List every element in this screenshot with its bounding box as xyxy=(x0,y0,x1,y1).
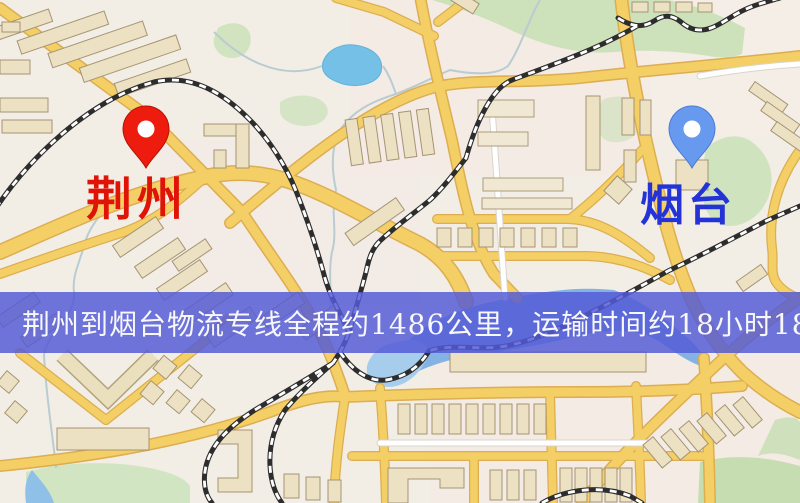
pin-hole xyxy=(138,121,155,138)
lake xyxy=(322,45,381,86)
city-label-yantai: 烟台 xyxy=(640,184,736,228)
route-info-banner: 荆州到烟台物流专线全程约1486公里，运输时间约18小时18分钟. xyxy=(0,292,800,353)
city-label-jingzhou: 荆州 xyxy=(86,176,188,222)
pin-hole xyxy=(684,121,701,138)
route-info-text: 荆州到烟台物流专线全程约1486公里，运输时间约18小时18分钟. xyxy=(0,303,800,343)
map-screenshot: 荆州 烟台 荆州到烟台物流专线全程约1486公里，运输时间约18小时18分钟. xyxy=(0,0,800,503)
map-canvas xyxy=(0,0,800,503)
